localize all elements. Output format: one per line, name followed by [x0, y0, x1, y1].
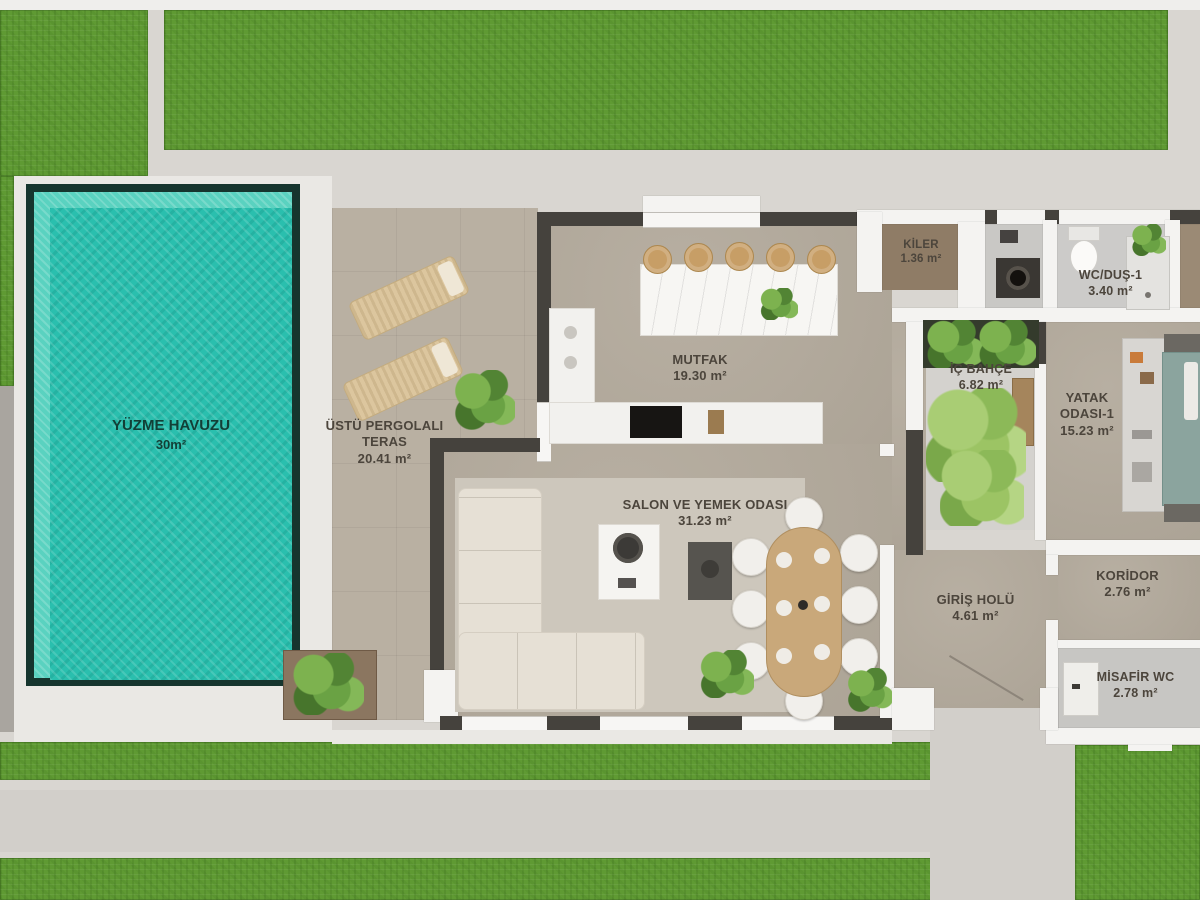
room-area: 1.36 m² [882, 252, 960, 266]
room-area: 2.76 m² [1065, 584, 1190, 600]
room-name: ÜSTÜ PERGOLALI TERAS [322, 418, 447, 451]
pool-label: YÜZME HAVUZU 30m² [61, 416, 281, 454]
grass-patch-top-left [0, 10, 148, 176]
grass-patch-top [164, 10, 1168, 150]
wall-post [985, 210, 997, 224]
room-label-wc-dus: WC/DUŞ-1 3.40 m² [1058, 268, 1163, 299]
place-setting [814, 596, 830, 612]
room-area: 6.82 m² [925, 378, 1037, 394]
place-setting [776, 552, 792, 568]
room-name: SALON VE YEMEK ODASI [590, 497, 820, 513]
bathroom-plant [1132, 224, 1166, 256]
room-name: İÇ BAHÇE [925, 362, 1037, 378]
room-area: 19.30 m² [635, 368, 765, 384]
room-name: KİLER [882, 238, 960, 252]
wall-salon-west [430, 438, 444, 670]
kitchen-sink [564, 326, 577, 339]
icbahce-plant-big [940, 450, 1024, 526]
planter-plant [292, 653, 364, 715]
remote [618, 578, 636, 588]
bar-stool [766, 243, 795, 272]
wall-kiler-laundry [958, 222, 985, 308]
island-plant [760, 288, 798, 320]
icbahce-plant-top [926, 320, 984, 368]
floor-plan: YÜZME HAVUZU 30m² [0, 0, 1200, 900]
bar-stool [725, 242, 754, 271]
kitchen-island [640, 264, 838, 336]
room-name: WC/DUŞ-1 [1058, 268, 1163, 284]
wall-giris-koridor-top [1046, 555, 1058, 575]
wall-laundry-wc [1043, 220, 1057, 308]
walkway-bottom [0, 790, 933, 852]
room-label-salon: SALON VE YEMEK ODASI 31.23 m² [590, 497, 820, 530]
nightstand [1164, 504, 1200, 522]
room-label-misafir-wc: MİSAFİR WC 2.78 m² [1078, 670, 1193, 701]
dresser-decor [1132, 430, 1152, 439]
room-name: KORİDOR [1065, 568, 1190, 584]
grass-strip-left [0, 176, 14, 386]
room-label-ic-bahce: İÇ BAHÇE 6.82 m² [925, 362, 1037, 393]
south-deck-band [332, 730, 892, 744]
room-area: 2.78 m² [1078, 686, 1193, 702]
icbahce-plant-top [978, 320, 1036, 368]
side-table-bowl [701, 560, 719, 578]
room-label-kiler: KİLER 1.36 m² [882, 238, 960, 267]
room-area: 20.41 m² [322, 451, 447, 467]
dining-chair [840, 586, 878, 624]
wall-salon-giris-top [880, 444, 894, 456]
table-tray [613, 533, 643, 563]
bar-stool [807, 245, 836, 274]
window-opening [643, 212, 760, 228]
terrace-plant [455, 370, 515, 430]
nightstand [1164, 334, 1200, 352]
dining-chair [840, 534, 878, 572]
wall-koridor-misafir [1058, 640, 1200, 648]
washer-door [1006, 266, 1030, 290]
cutting-board [708, 410, 724, 434]
top-edge-strip [0, 0, 1200, 10]
kitchen-counter-bottom [549, 402, 823, 444]
wall-hall-icbahce [906, 322, 923, 432]
kitchen-sink [564, 356, 577, 369]
pool-label-text: YÜZME HAVUZU [61, 416, 281, 436]
bar-stool [684, 243, 713, 272]
cooktop [630, 406, 682, 438]
wall-north-right [857, 210, 1200, 224]
room-label-yatak: YATAK ODASI-1 15.23 m² [1048, 390, 1126, 439]
room-giris-floor [892, 550, 1062, 708]
living-plant [700, 650, 754, 698]
wall-hall-icbahce-dark [906, 430, 923, 555]
wall-entry-east [1040, 688, 1058, 730]
place-setting [814, 548, 830, 564]
room-label-mutfak: MUTFAK 19.30 m² [635, 352, 765, 385]
wall-salon-sw [424, 670, 458, 722]
room-label-teras: ÜSTÜ PERGOLALI TERAS 20.41 m² [322, 418, 447, 467]
dresser-decor [1132, 462, 1152, 482]
grass-strip-bottom-2 [0, 858, 933, 900]
laundry-faucet [1000, 230, 1018, 243]
dresser-decor [1130, 352, 1143, 363]
entry-plant [848, 668, 892, 712]
sofa-bottom [458, 632, 645, 710]
dining-chair [732, 590, 770, 628]
dresser-decor [1140, 372, 1154, 384]
place-setting [776, 600, 792, 616]
bar-stool [643, 245, 672, 274]
toilet-tank [1068, 226, 1100, 241]
grass-patch-bottom-right [1075, 745, 1200, 900]
room-name: GİRİŞ HOLÜ [893, 592, 1058, 608]
wall-entry-west [892, 688, 934, 730]
place-setting [814, 644, 830, 660]
room-name: MİSAFİR WC [1078, 670, 1193, 686]
wall-kitchen-kiler [857, 212, 882, 292]
room-area: 4.61 m² [893, 608, 1058, 624]
wall-yatak-koridor [1046, 540, 1200, 555]
room-area: 3.40 m² [1058, 284, 1163, 300]
place-setting [776, 648, 792, 664]
room-name: YATAK ODASI-1 [1048, 390, 1126, 423]
grass-strip-bottom-1 [0, 742, 933, 780]
room-area: 31.23 m² [590, 513, 820, 529]
dining-chair [732, 538, 770, 576]
room-name: MUTFAK [635, 352, 765, 368]
table-centerpiece [798, 600, 808, 610]
pool-label-area: 30m² [61, 436, 281, 454]
window-sill [643, 196, 760, 212]
room-label-koridor: KORİDOR 2.76 m² [1065, 568, 1190, 601]
bed-pillow [1184, 362, 1198, 420]
wall-south-misafir [1046, 728, 1200, 744]
room-area: 15.23 m² [1048, 423, 1126, 439]
room-label-giris: GİRİŞ HOLÜ 4.61 m² [893, 592, 1058, 625]
room-edge-sliver [1180, 224, 1200, 308]
